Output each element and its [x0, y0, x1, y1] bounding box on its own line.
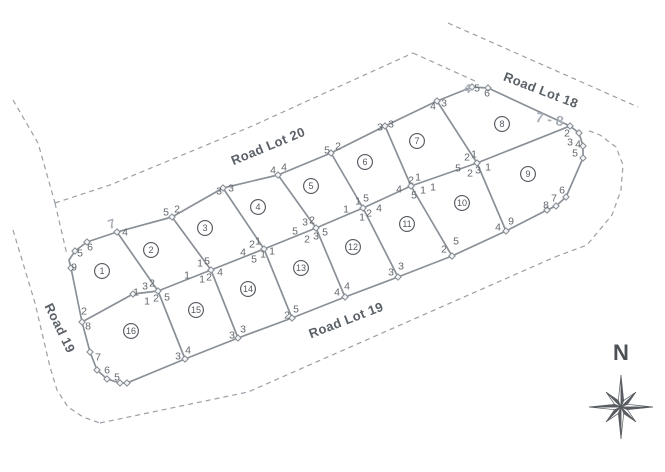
corner-number: 2 — [467, 168, 473, 180]
lot-number-15: 15 — [191, 305, 201, 315]
corner-number: 2 — [441, 244, 447, 256]
lot-number-5: 5 — [308, 181, 313, 191]
corner-number: 5 — [455, 163, 461, 175]
corner-number: 8 — [543, 200, 549, 212]
compass-point — [589, 404, 621, 407]
corner-number: 3 — [175, 351, 181, 363]
corner-number: 5 — [114, 372, 120, 384]
handwritten-note: 4 — [463, 81, 472, 97]
corner-number: 2 — [81, 306, 87, 318]
corner-number: 1 — [485, 162, 491, 174]
corner-number: 5 — [293, 304, 299, 316]
corner-marker-icon — [235, 335, 241, 341]
corner-number: 1 — [144, 296, 150, 308]
lot-number-11: 11 — [402, 219, 411, 229]
corner-number: 4 — [122, 227, 128, 239]
lot-number-4: 4 — [255, 202, 260, 212]
corner-number: 3 — [302, 217, 308, 229]
corner-number: 1 — [430, 182, 436, 194]
corner-number: 5 — [453, 236, 459, 248]
corner-number: 4 — [217, 267, 223, 279]
corner-number: 8 — [85, 321, 91, 333]
corner-number: 5 — [322, 227, 328, 239]
corner-number: 4 — [430, 101, 436, 113]
corner-number: 1 — [133, 287, 139, 299]
corner-number: 3 — [475, 165, 481, 177]
corner-number: 4 — [334, 287, 340, 299]
compass-point — [589, 407, 621, 410]
corner-number: 4 — [344, 281, 350, 293]
corner-marker-icon — [580, 155, 586, 161]
corner-marker-icon — [87, 349, 93, 355]
compass-point — [621, 404, 653, 407]
corner-number: 1 — [269, 246, 275, 258]
lot-boundary-line — [69, 87, 570, 268]
corner-number: 3 — [313, 231, 319, 243]
boundary-dashed-line — [55, 203, 67, 255]
corner-number: 2 — [464, 152, 470, 164]
corner-number: 5 — [164, 292, 170, 304]
corner-number: 2 — [335, 141, 341, 153]
compass-north-label: N — [613, 340, 629, 366]
corner-number: 1 — [415, 172, 421, 184]
lot-number-2: 2 — [148, 245, 153, 255]
corner-number: 7 — [551, 193, 557, 205]
compass-point — [618, 375, 621, 407]
corner-number: 1 — [184, 270, 190, 282]
corner-number: 9 — [508, 216, 514, 228]
corner-marker-icon — [503, 228, 509, 234]
lot-boundary-line — [316, 228, 345, 297]
boundary-dashed-line — [413, 53, 475, 81]
corner-number: 5 — [411, 190, 417, 202]
corner-number: 2 — [174, 204, 180, 216]
corner-number: 2 — [206, 272, 212, 284]
corner-number: 3 — [398, 261, 404, 273]
corner-number: 5 — [163, 207, 169, 219]
lot-number-14: 14 — [243, 284, 253, 294]
corner-marker-icon — [342, 294, 348, 300]
lot-boundary-line — [158, 291, 185, 359]
corner-number: 7 — [95, 352, 101, 364]
handwritten-note: 7 - 8 — [535, 109, 565, 129]
corner-number: 2 — [149, 278, 155, 290]
corner-number: 2 — [153, 293, 159, 305]
lot-number-1: 1 — [99, 266, 104, 276]
corner-number: 1 — [359, 212, 365, 224]
boundary-dashed-line — [100, 257, 555, 423]
compass-point — [618, 407, 621, 439]
lot-number-10: 10 — [457, 198, 467, 208]
corner-number: 1 — [471, 149, 477, 161]
corner-number: 4 — [376, 203, 382, 215]
corner-number: 6 — [104, 365, 110, 377]
corner-number: 2 — [309, 215, 315, 227]
corner-number: 6 — [559, 185, 565, 197]
lot-number-9: 9 — [525, 169, 530, 179]
corner-number: 3 — [216, 186, 222, 198]
corner-number: 2 — [304, 234, 310, 246]
compass-rose-icon — [589, 375, 653, 439]
lot-number-8: 8 — [499, 119, 504, 129]
corner-marker-icon — [182, 356, 188, 362]
boundary-dashed-line — [555, 130, 623, 257]
plat-map-page: 5694523344523343562345678945233445233435… — [0, 0, 665, 472]
lot-number-16: 16 — [126, 326, 136, 336]
lot-number-7: 7 — [414, 136, 419, 146]
boundary-dashed-line — [55, 53, 413, 203]
corner-number: 2 — [366, 208, 372, 220]
corner-number: 3 — [240, 324, 246, 336]
boundary-dashed-line — [13, 100, 55, 203]
lot-number-6: 6 — [362, 157, 367, 167]
corner-marker-icon — [124, 380, 130, 386]
lot-number-3: 3 — [202, 223, 207, 233]
corner-number: 5 — [474, 83, 480, 95]
corner-number: 1 — [355, 196, 361, 208]
corner-number: 3 — [228, 183, 234, 195]
corner-number: 2 — [284, 310, 290, 322]
corner-number: 3 — [142, 281, 148, 293]
corner-number: 5 — [204, 256, 210, 268]
compass-point — [621, 407, 624, 439]
corner-number: 5 — [77, 248, 83, 260]
corner-number: 4 — [185, 345, 191, 357]
corner-number: 4 — [281, 162, 287, 174]
lot-number-13: 13 — [296, 263, 306, 273]
compass-point — [621, 375, 624, 407]
corner-number: 3 — [229, 330, 235, 342]
subdivision-plat-map: 5694523344523343562345678945233445233435… — [0, 0, 665, 472]
corner-marker-icon — [395, 274, 401, 280]
corner-number: 4 — [240, 247, 246, 259]
corner-number: 1 — [260, 249, 266, 261]
corner-number: 1 — [197, 258, 203, 270]
corner-number: 4 — [495, 222, 501, 234]
corner-number: 5 — [292, 226, 298, 238]
corner-number: 3 — [388, 267, 394, 279]
corner-number: 5 — [363, 193, 369, 205]
corner-number: 1 — [199, 274, 205, 286]
corner-number: 6 — [87, 242, 93, 254]
corner-number: 3 — [377, 122, 383, 134]
corner-number: 5 — [324, 145, 330, 157]
lot-boundary-line — [211, 270, 238, 338]
corner-number: 5 — [251, 254, 257, 266]
lot-boundary-line — [264, 249, 292, 318]
corner-number: 5 — [572, 148, 578, 160]
lot-number-12: 12 — [348, 242, 358, 252]
corner-number: 1 — [255, 236, 261, 248]
corner-number: 1 — [420, 185, 426, 197]
corner-number: 6 — [484, 88, 490, 100]
corner-number: 4 — [270, 165, 276, 177]
corner-number: 4 — [396, 184, 402, 196]
corner-number: 9 — [71, 262, 77, 274]
compass-point — [621, 407, 653, 410]
handwritten-note: 7 — [106, 215, 118, 232]
corner-number: 1 — [343, 204, 349, 216]
corner-number: 3 — [441, 98, 447, 110]
lot-boundary-line — [477, 163, 506, 231]
corner-number: 2 — [408, 175, 414, 187]
corner-number: 3 — [388, 119, 394, 131]
